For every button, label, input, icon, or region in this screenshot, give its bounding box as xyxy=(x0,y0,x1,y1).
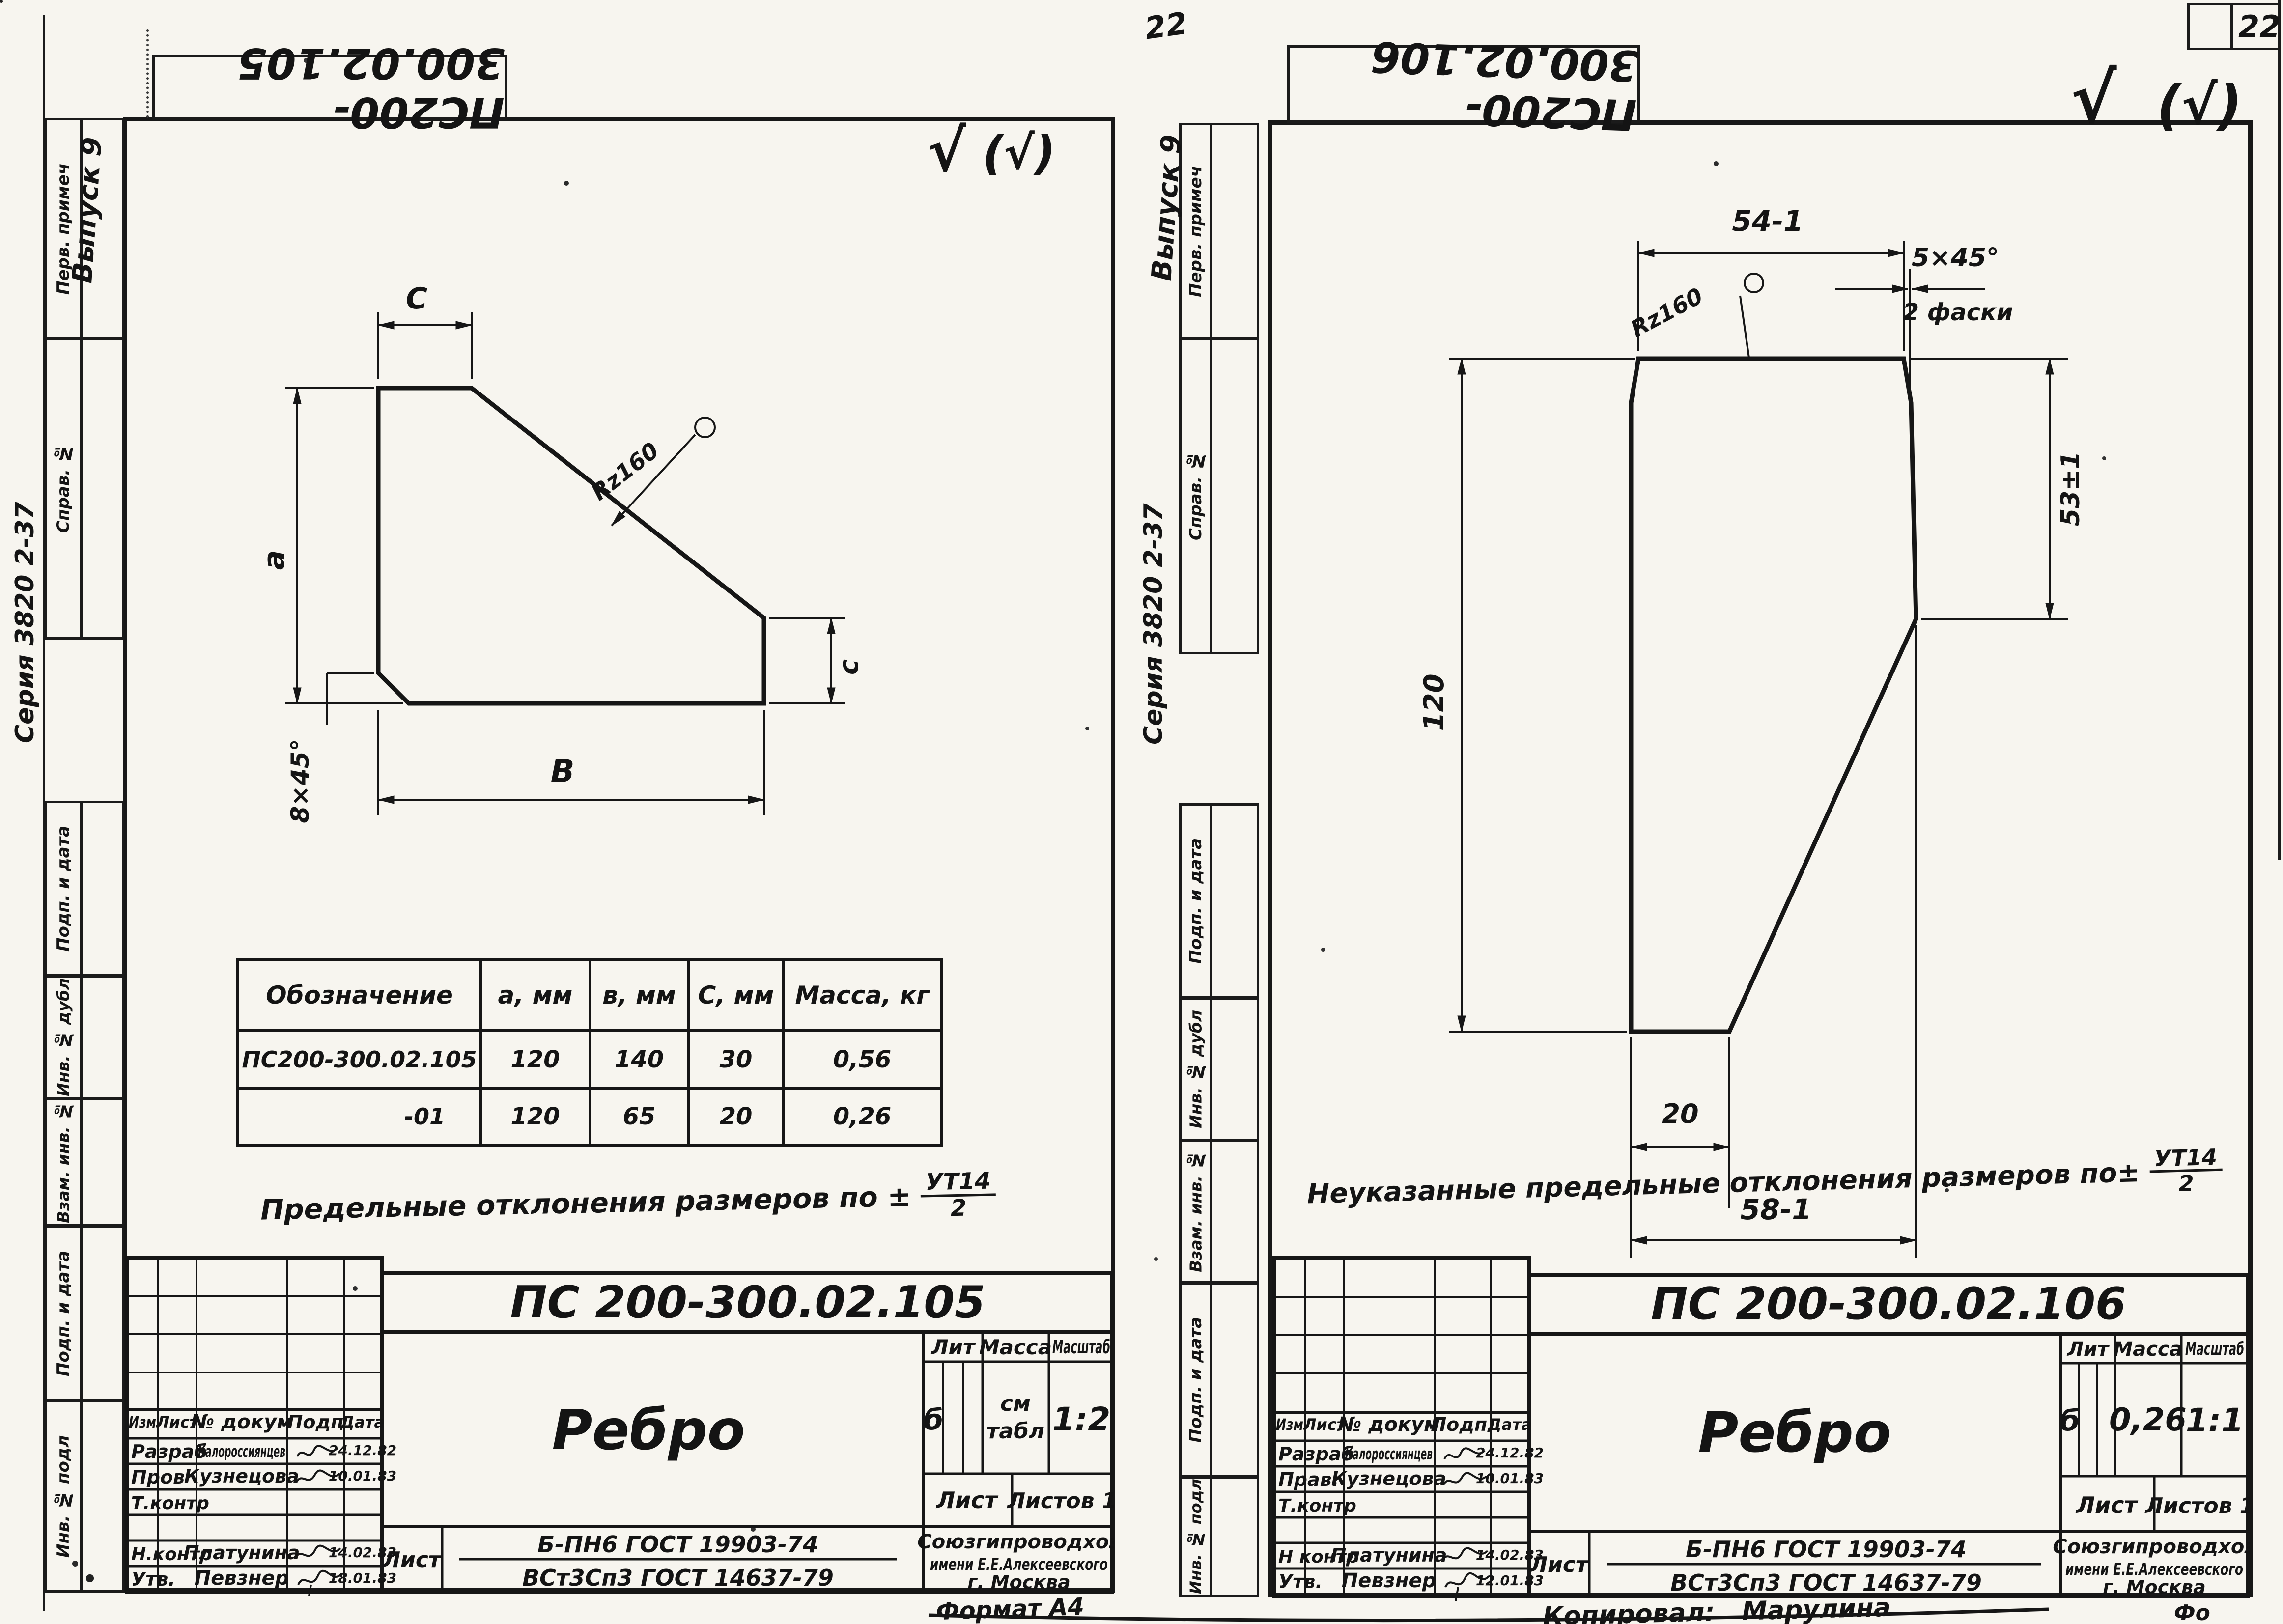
material-top: Б-ПН6 ГОСТ 19903-74 xyxy=(1686,1536,1967,1563)
page-number: 22 xyxy=(2238,9,2278,45)
left-margin-box-vzam-empty xyxy=(80,1098,124,1227)
table-cell: 0,26 xyxy=(785,1090,940,1144)
sheet-label: Лист xyxy=(935,1487,999,1513)
right-roughness-paren-icon: (√) xyxy=(2157,74,2242,137)
table-header-designation: Обозначение xyxy=(239,961,482,1032)
right-margin-label-sprav: Справ. № xyxy=(1182,341,1210,650)
right-tolerance-fraction: УТ14 2 xyxy=(2149,1146,2223,1197)
row-date: 24.12.82 xyxy=(1476,1445,1544,1461)
dim-rz: Rz160 xyxy=(586,437,664,505)
row-role: Утв. xyxy=(1278,1571,1323,1593)
table-cell: 120 xyxy=(482,1032,591,1090)
right-margin-box-podl-empty xyxy=(1210,1476,1259,1597)
right-stamp-text: ПС200-300.02.106 xyxy=(1288,29,1639,140)
material-sheet-label: Лист xyxy=(1529,1552,1589,1577)
left-margin-box-podl-empty xyxy=(80,1400,124,1593)
right-margin-label-podp1: Подп. и дата xyxy=(1182,806,1210,996)
material-sheet-label: Лист xyxy=(382,1547,442,1572)
org-line3: г. Москва xyxy=(2103,1576,2205,1598)
right-format-partial: Фо xyxy=(2174,1600,2210,1624)
left-stamp-box: ПС200-300.02.105 xyxy=(152,55,507,120)
scale-value: 1:2 xyxy=(1052,1400,1110,1438)
left-doc-number: ПС 200-300.02.105 xyxy=(510,1277,985,1328)
table-cell: -01 xyxy=(239,1090,482,1144)
dim-chamfer: 5×45° xyxy=(1912,243,1999,273)
table-cell: 30 xyxy=(690,1032,785,1090)
org-line3: г. Москва xyxy=(967,1571,1070,1593)
lit-value: б xyxy=(2060,1404,2080,1437)
right-margin-label-vzam: Взам. инв. № xyxy=(1182,1143,1210,1281)
left-part-drawing: C a 8×45° В с Rz160 xyxy=(236,265,904,884)
left-tolerance-fraction-den: 2 xyxy=(950,1197,967,1221)
table-cell: 120 xyxy=(482,1090,591,1144)
right-margin-label-podl: Инв. № подл xyxy=(1182,1479,1210,1595)
scan-speckles xyxy=(0,0,3,3)
row-name: Платунина xyxy=(1331,1544,1447,1566)
right-margin-label-podp2: Подп. и дата xyxy=(1182,1285,1210,1475)
left-margin-label-dubl: Инв. № дубл xyxy=(47,978,80,1097)
right-margin-box-vzam-empty xyxy=(1210,1140,1259,1284)
header-podp: Подп. xyxy=(1431,1414,1494,1435)
lit-value: б xyxy=(924,1403,944,1436)
right-title-block: ПС 200-300.02.106 Ребро Лит Масса Масшта… xyxy=(1272,1253,2250,1601)
left-margin-box-podp1-empty xyxy=(80,801,124,977)
lit-label: Лит xyxy=(2067,1338,2110,1361)
header-izm: Изм xyxy=(1276,1415,1303,1434)
row-role: Т.контр xyxy=(1278,1496,1356,1516)
header-izm: Изм xyxy=(129,1413,156,1431)
right-part-outline xyxy=(1631,359,1916,1032)
right-tolerance-fraction-num: УТ14 xyxy=(2149,1146,2223,1173)
left-part-name: Ребро xyxy=(552,1399,745,1462)
mass-value: 0,26 xyxy=(2109,1402,2187,1438)
left-margin-label-podp1: Подп. и дата xyxy=(47,804,80,974)
left-parameters-table: Обозначение а, мм в, мм С, мм Масса, кг … xyxy=(236,958,943,1147)
row-name: Калороссиянцев xyxy=(1345,1444,1433,1463)
dim-h-right: 53±1 xyxy=(2056,451,2086,526)
scale-value: 1:1 xyxy=(2186,1401,2244,1439)
left-margin-box-sprav-empty xyxy=(80,338,124,640)
left-roughness-icon: √ xyxy=(928,117,966,185)
row-name: Кузнецова xyxy=(1331,1468,1446,1489)
left-tolerance-note-text: Предельные отклонения размеров по ± xyxy=(260,1180,911,1227)
row-role: Разраб xyxy=(131,1441,207,1462)
dim-w-top: 54-1 xyxy=(1732,206,1803,238)
right-margin-series: Серия 3820 2-37 xyxy=(1138,459,1169,788)
mass-value-line1: см xyxy=(1000,1391,1031,1416)
right-tolerance-fraction-den: 2 xyxy=(2178,1172,2195,1195)
dim-b-bottom: В xyxy=(551,754,575,790)
header-data: Дата xyxy=(340,1413,385,1431)
right-margin-box-sprav-empty xyxy=(1210,338,1259,654)
right-margin-box-podp2-empty xyxy=(1210,1282,1259,1478)
right-margin-box-perv-empty xyxy=(1210,123,1259,340)
material-bottom: ВСт3Сп3 ГОСТ 14637-79 xyxy=(1670,1569,1982,1596)
right-stamp-box: ПС200-300.02.106 xyxy=(1287,45,1640,123)
sheets-label: Листов 1 xyxy=(2144,1493,2250,1518)
row-role: Прав. xyxy=(1278,1469,1339,1490)
dim-c-top: C xyxy=(406,281,427,316)
dim-chamfer-note: 2 фаски xyxy=(1903,299,2013,326)
table-header-b: в, мм xyxy=(591,961,690,1032)
row-name: Певзнер xyxy=(195,1567,289,1590)
left-title-block-texts: ПС 200-300.02.105 Ребро Лит Масса Масшта… xyxy=(129,1277,1114,1593)
dim-c-right: с xyxy=(833,659,864,675)
sheet-label: Лист xyxy=(2075,1492,2139,1518)
left-stamp-text: ПС200-300.02.105 xyxy=(155,38,505,137)
row-role: Пров xyxy=(131,1466,185,1488)
table-cell: ПС200-300.02.105 xyxy=(239,1032,482,1090)
dim-chamfer: 8×45° xyxy=(286,739,314,823)
dim-h-left: 120 xyxy=(1418,674,1450,731)
dim-w-small: 20 xyxy=(1662,1098,1698,1129)
table-cell: 0,56 xyxy=(785,1032,940,1090)
table-cell: 140 xyxy=(591,1032,690,1090)
left-dimension-lines xyxy=(285,312,845,815)
left-part-outline xyxy=(378,388,764,703)
table-header-mass: Масса, кг xyxy=(785,961,940,1032)
header-doc: № докум xyxy=(190,1411,293,1433)
table-cell: 20 xyxy=(690,1090,785,1144)
right-roughness-icon: √ xyxy=(2071,59,2116,139)
left-dimension-labels: C a 8×45° В с Rz160 xyxy=(257,281,864,823)
lit-label: Лит xyxy=(930,1335,976,1359)
row-date: 24.12.82 xyxy=(329,1442,396,1458)
org-line1: Союзгипроводхоз xyxy=(2053,1536,2250,1558)
mass-label: Масса xyxy=(979,1335,1052,1359)
right-handwritten-page-number: 22 xyxy=(1142,5,1189,46)
left-margin-box-podp2-empty xyxy=(80,1226,124,1401)
scale-label: Масштаб xyxy=(1052,1336,1110,1358)
table-header-c: С, мм xyxy=(690,961,785,1032)
row-name: Певзнер xyxy=(1342,1569,1437,1592)
right-margin-box-dubl-empty xyxy=(1210,997,1259,1141)
org-line1: Союзгипроводхоз xyxy=(917,1531,1114,1553)
right-margin-box-podp1-empty xyxy=(1210,803,1259,999)
mass-value-line2: табл xyxy=(986,1419,1044,1444)
right-doc-number: ПС 200-300.02.106 xyxy=(1651,1278,2126,1330)
right-margin-label-dubl: Инв. № дубл xyxy=(1182,1000,1210,1138)
left-margin-box-dubl-empty xyxy=(80,975,124,1099)
page-number-divider xyxy=(2230,3,2233,50)
scan-edge-right xyxy=(2278,0,2281,860)
left-margin-label-podl: Инв. № подл xyxy=(47,1403,80,1590)
left-roughness-paren-icon: (√) xyxy=(983,127,1056,180)
row-date: 10.01.83 xyxy=(329,1468,396,1484)
row-name: Калороссиянцев xyxy=(198,1442,285,1461)
right-title-block-texts: ПС 200-300.02.106 Ребро Лит Масса Масшта… xyxy=(1276,1278,2250,1598)
row-role: Т.контр xyxy=(131,1493,209,1513)
left-tolerance-fraction-num: УТ14 xyxy=(920,1169,996,1197)
mass-label: Масса xyxy=(2113,1338,2182,1361)
row-name: Платунина xyxy=(184,1542,300,1564)
header-podp: Подп xyxy=(287,1411,344,1433)
header-data: Дата xyxy=(1487,1415,1532,1434)
left-tolerance-fraction: УТ14 2 xyxy=(920,1169,996,1221)
scanned-drawing-page: 22 Перв. примеч Справ. № Подп. и дата Ин… xyxy=(0,0,2283,1624)
dim-a-left: a xyxy=(257,550,291,570)
header-doc: № докум xyxy=(1337,1413,1440,1436)
table-header-a: а, мм xyxy=(482,961,591,1032)
row-role: Утв. xyxy=(131,1568,175,1590)
left-margin-series: Серия 3820 2-37 xyxy=(8,459,42,786)
scale-label: Масштаб xyxy=(2185,1339,2244,1359)
left-margin-label-vzam: Взам. инв. № xyxy=(47,1100,80,1224)
right-part-name: Ребро xyxy=(1698,1401,1891,1465)
right-dimension-lines xyxy=(1449,241,2068,1258)
left-stamp-perforation xyxy=(146,29,149,118)
left-title-block: ПС 200-300.02.105 Ребро Лит Масса Масшта… xyxy=(125,1253,1114,1596)
table-cell: 65 xyxy=(591,1090,690,1144)
material-bottom: ВСт3Сп3 ГОСТ 14637-79 xyxy=(522,1565,834,1591)
scan-underline-stroke xyxy=(924,1606,2054,1624)
left-margin-label-sprav: Справ. № xyxy=(47,341,80,636)
row-date: 10.01.83 xyxy=(1476,1470,1544,1486)
sheets-label: Листов 1 xyxy=(1007,1488,1114,1513)
left-margin-label-podp2: Подп. и дата xyxy=(47,1228,80,1399)
right-part-drawing: 54-1 Rz160 5×45° 2 фаски 53±1 120 20 58-… xyxy=(1415,206,2113,1277)
row-role: Разраб xyxy=(1278,1443,1354,1465)
row-name: Кузнецова xyxy=(184,1465,299,1487)
material-top: Б-ПН6 ГОСТ 19903-74 xyxy=(537,1531,818,1558)
